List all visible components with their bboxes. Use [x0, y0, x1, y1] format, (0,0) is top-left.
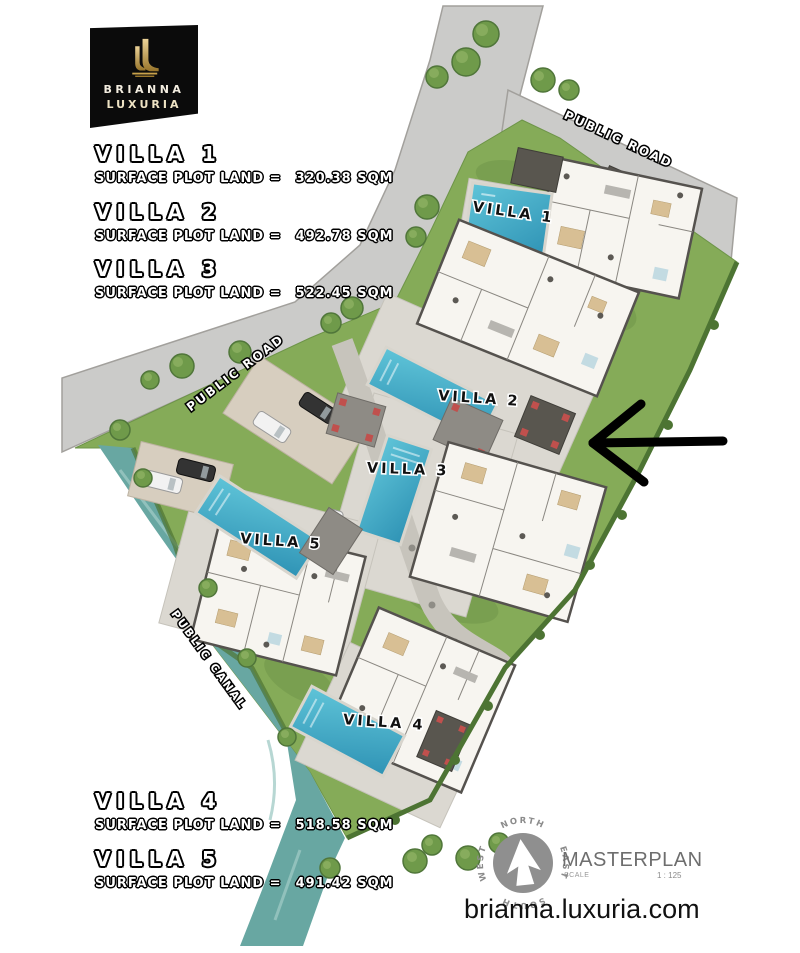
villa-2-area: 492.78 SQM	[296, 229, 394, 244]
villa-2-name: VILLA 2	[95, 200, 394, 224]
villa-5-surface-label: SURFACE PLOT LAND =	[95, 876, 282, 891]
villa-4-entry: VILLA 4 SURFACE PLOT LAND =518.58 SQM	[95, 789, 394, 833]
map-label-villa-3: VILLA 3	[367, 461, 450, 480]
villa-3-surface-label: SURFACE PLOT LAND =	[95, 286, 282, 301]
villa-3-area: 522.45 SQM	[296, 286, 394, 301]
villa-1-surface-label: SURFACE PLOT LAND =	[95, 171, 282, 186]
compass-north-label: NORTH	[499, 816, 546, 831]
villa-4-area: 518.58 SQM	[296, 818, 394, 833]
scale-ratio: 1 : 125	[657, 871, 681, 880]
villa-3-name: VILLA 3	[95, 257, 394, 281]
villa-3-entry: VILLA 3 SURFACE PLOT LAND =522.45 SQM	[95, 257, 394, 301]
villa-1-area: 320.38 SQM	[296, 171, 394, 186]
masterplan-title: MASTERPLAN	[562, 849, 703, 872]
villa-1-entry: VILLA 1 SURFACE PLOT LAND =320.38 SQM	[95, 142, 394, 186]
masterplan-page: VILLA 1 VILLA 2 VILLA 3 VILLA 5 VILLA 4 …	[0, 0, 800, 953]
villa-2-entry: VILLA 2 SURFACE PLOT LAND =492.78 SQM	[95, 200, 394, 244]
scale-label: SCALE	[564, 872, 589, 879]
villa-4-name: VILLA 4	[95, 789, 394, 813]
logo-building-icon	[122, 35, 166, 81]
brand-logo: BRIANNA LUXURIA	[90, 25, 198, 128]
villa-5-entry: VILLA 5 SURFACE PLOT LAND =491.42 SQM	[95, 847, 394, 891]
villa-5-area: 491.42 SQM	[296, 876, 394, 891]
compass-west-label: WEST	[476, 844, 490, 883]
villa-1-name: VILLA 1	[95, 142, 394, 166]
brand-name-line1: BRIANNA	[104, 83, 185, 96]
website-text: brianna.luxuria.com	[464, 894, 700, 925]
villa-4-surface-label: SURFACE PLOT LAND =	[95, 818, 282, 833]
brand-name-line2: LUXURIA	[106, 98, 181, 111]
villa-2-surface-label: SURFACE PLOT LAND =	[95, 229, 282, 244]
villa-5-name: VILLA 5	[95, 847, 394, 871]
